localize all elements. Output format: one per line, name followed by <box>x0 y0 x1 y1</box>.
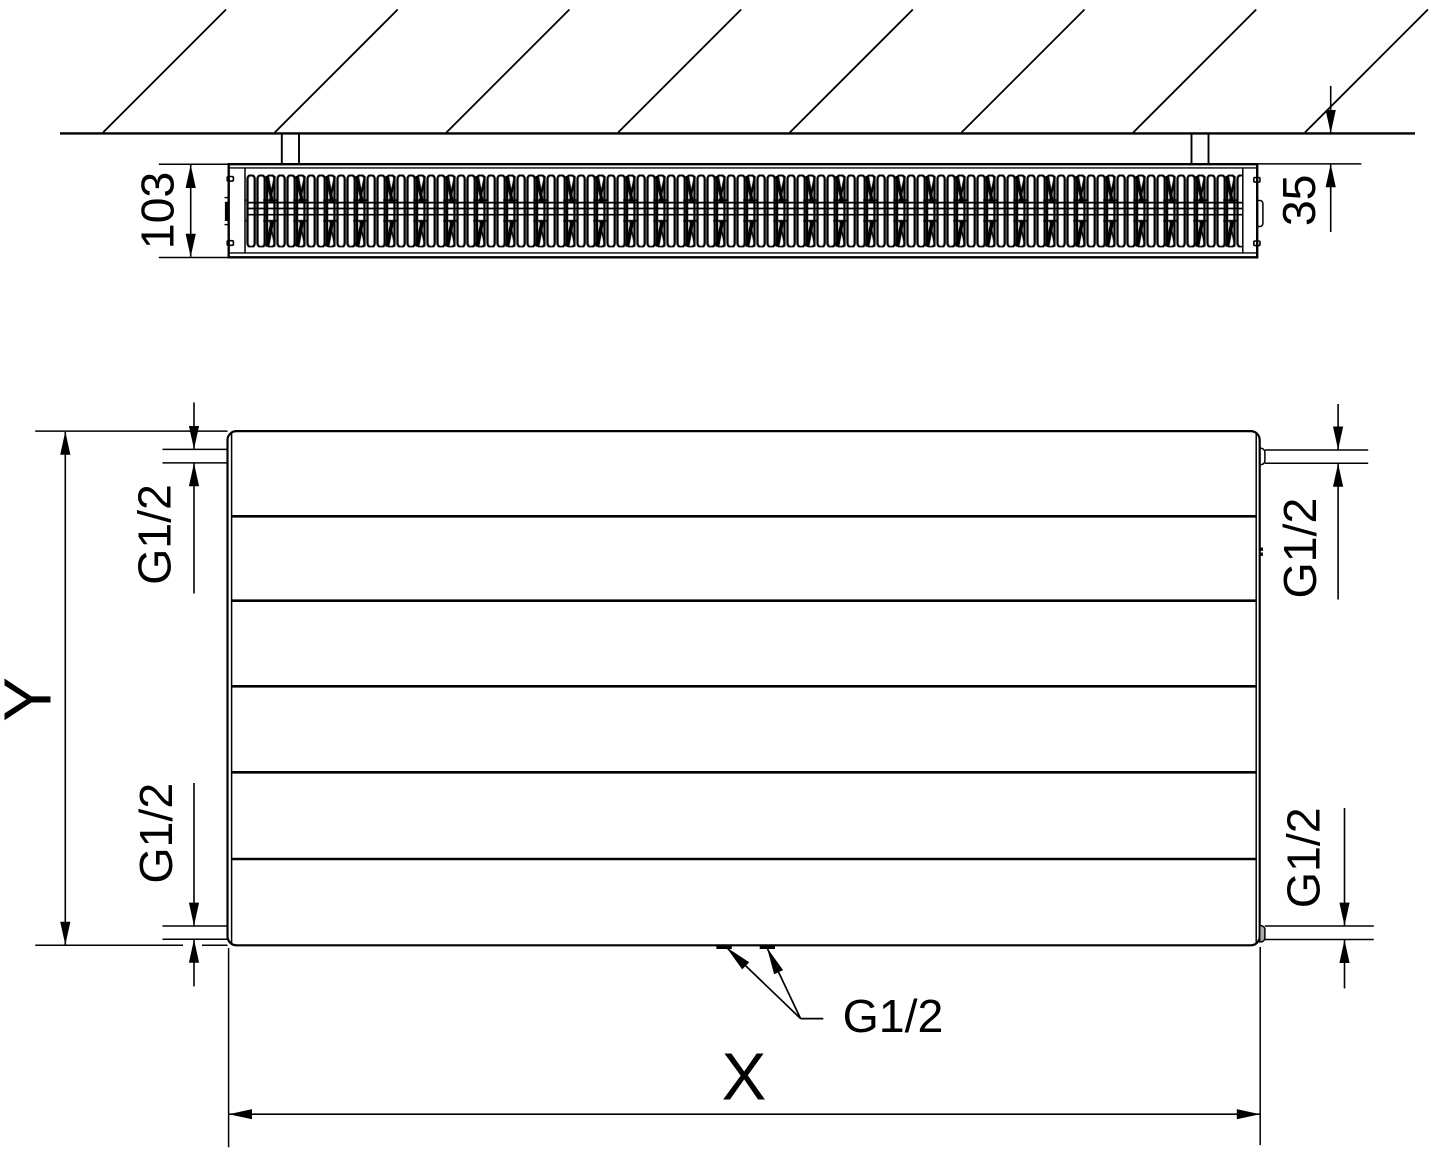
svg-text:G1/2: G1/2 <box>843 990 944 1042</box>
svg-text:G1/2: G1/2 <box>130 783 182 884</box>
svg-text:35: 35 <box>1273 174 1325 226</box>
svg-text:Y: Y <box>0 677 65 722</box>
svg-text:G1/2: G1/2 <box>129 484 181 585</box>
svg-text:X: X <box>722 1040 767 1115</box>
svg-text:G1/2: G1/2 <box>1274 498 1326 599</box>
svg-text:G1/2: G1/2 <box>1277 807 1329 908</box>
svg-text:103: 103 <box>132 172 184 250</box>
